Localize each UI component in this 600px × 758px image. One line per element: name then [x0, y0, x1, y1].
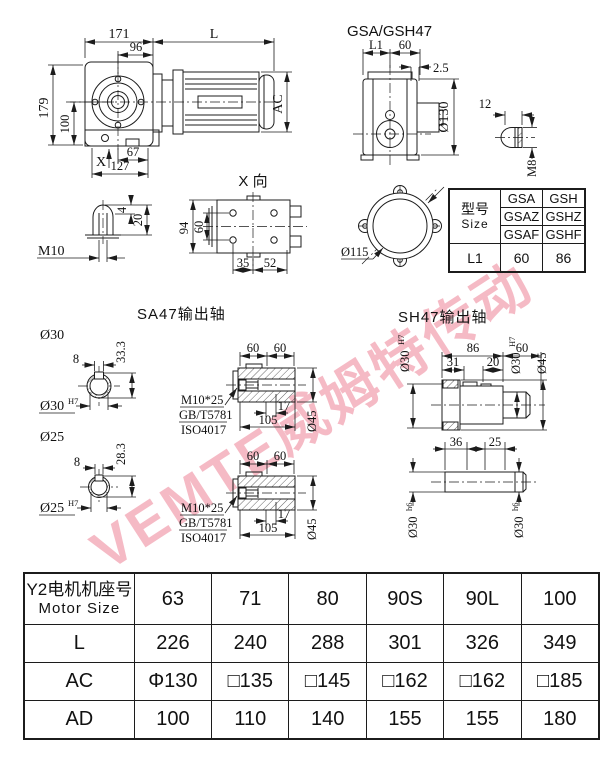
dim-label: 2.5 — [433, 61, 449, 75]
dim-label: 4 — [115, 206, 129, 213]
dim-label: Ø30 — [509, 352, 523, 374]
value-cell: 140 — [289, 701, 366, 740]
gsa-variant-cell: GSA — [501, 189, 543, 208]
value-cell: 110 — [212, 701, 289, 740]
value-cell: 155 — [366, 701, 443, 740]
dim-label: Ø130 — [437, 101, 452, 132]
gsh-variant-cell: GSHZ — [543, 208, 586, 226]
value-cell: 288 — [289, 625, 366, 663]
table-row: L1 60 86 — [449, 244, 585, 273]
value-cell: □135 — [212, 663, 289, 701]
dim-label: 127 — [111, 159, 130, 173]
motor-size-header-cell: Y2电机机座号 Motor Size — [24, 573, 134, 625]
drawing-page: VEMTE威姆特传动 /* color applied after load b… — [0, 0, 600, 758]
dim-label: 179 — [37, 98, 52, 119]
motor-size-header-cn: Y2电机机座号 — [25, 579, 134, 600]
dim-label: Ø45 — [305, 518, 319, 540]
value-cell: 100 — [134, 701, 211, 740]
x-direction-view-drawing: X 向 94 60 35 52 — [165, 170, 340, 292]
view-title: GSA/GSH47 — [347, 23, 432, 40]
row-label-AD: AD — [24, 701, 134, 740]
sa47-shaft-lower-drawing: 60 60 M10*25 GB/T5781 ISO4017 17 105 Ø45 — [178, 446, 328, 554]
bolt-spec-label: M10*25 — [181, 501, 223, 515]
dim-label: 17 — [278, 399, 291, 413]
dim-label: M8 — [525, 160, 539, 177]
dim-label: 60 — [192, 221, 206, 234]
bore-label: Ø30 — [40, 328, 64, 343]
sh47-section-title: SH47输出轴 — [398, 306, 488, 327]
dim-label: 52 — [264, 256, 277, 270]
sa47-bore25-section: Ø25 8 28.3 Ø25 H7 — [28, 424, 178, 528]
table-row: L 226 240 288 301 326 349 — [24, 625, 599, 663]
dim-label: 36 — [450, 435, 463, 449]
gsh-variant-cell: GSHF — [543, 226, 586, 244]
dim-label: 60 — [274, 341, 287, 355]
motor-size-cell: 90S — [366, 573, 443, 625]
dim-label: 105 — [259, 521, 278, 535]
model-header-cn: 型号 — [450, 202, 500, 217]
l1-gsa-cell: 60 — [501, 244, 543, 273]
dim-label: 60 — [399, 38, 412, 52]
standard-label: GB/T5781 — [179, 408, 232, 422]
motor-size-cell: 80 — [289, 573, 366, 625]
standard-label: GB/T5781 — [179, 516, 232, 530]
bolt-spec-label: M10*25 — [181, 393, 223, 407]
dim-label: 25 — [489, 435, 502, 449]
table-row: AC Φ130 □135 □145 □162 □162 □185 — [24, 663, 599, 701]
value-cell: □162 — [366, 663, 443, 701]
dim-label: 28.3 — [114, 443, 128, 465]
dim-tolerance: H7 — [507, 337, 517, 347]
dim-label: 17 — [278, 507, 291, 521]
sa47-shaft-upper-drawing: 60 60 M10*25 GB/T5781 ISO4017 17 105 Ø45 — [178, 338, 328, 446]
dim-label: 60 — [247, 449, 260, 463]
dim-label: 100 — [58, 115, 72, 134]
dim-label: M10 — [38, 244, 64, 259]
dim-label: AC — [271, 94, 286, 113]
table-row: 型号 Size GSA GSH — [449, 189, 585, 208]
dim-label: 8 — [74, 455, 80, 469]
value-cell: Φ130 — [134, 663, 211, 701]
dim-label: 105 — [259, 413, 278, 427]
dim-tolerance: h6 — [510, 503, 520, 512]
bore-label: Ø25 — [40, 430, 64, 445]
standard-label: ISO4017 — [181, 531, 226, 545]
dim-tolerance: h6 — [404, 503, 414, 512]
view-title: X 向 — [238, 173, 267, 190]
l1-gsh-cell: 86 — [543, 244, 586, 273]
dim-tolerance: H7 — [396, 335, 406, 345]
dim-label: Ø45 — [535, 352, 549, 374]
dim-label: 35 — [237, 256, 250, 270]
value-cell: 180 — [521, 701, 599, 740]
model-header-en: Size — [450, 218, 500, 231]
sa47-section-title: SA47输出轴 — [137, 303, 226, 324]
dim-label: 60 — [274, 449, 287, 463]
dim-label: Ø45 — [305, 410, 319, 432]
shaft-end-detail-drawing: M10 4 20 — [25, 192, 160, 292]
model-size-table: 型号 Size GSA GSH GSAZ GSHZ GSAF GSHF L1 6… — [448, 188, 586, 273]
dim-label: 33.3 — [114, 341, 128, 363]
motor-size-header-en: Motor Size — [25, 600, 134, 619]
dim-label: 67 — [127, 145, 140, 159]
dim-label: 94 — [177, 221, 191, 234]
dim-tolerance: H7 — [68, 498, 78, 508]
motor-size-cell: 90L — [444, 573, 521, 625]
sh47-shaft-lower-drawing: 36 25 Ø30 h6 Ø30 h6 — [393, 430, 600, 545]
flange-view-drawing: Ø115 — [340, 180, 460, 280]
dim-label: Ø115 — [341, 245, 368, 259]
dim-label: 20 — [487, 355, 500, 369]
sa47-bore30-section: Ø30 8 33.3 Ø30 H7 — [28, 322, 178, 426]
dim-label: X — [96, 155, 106, 170]
value-cell: 240 — [212, 625, 289, 663]
dim-label: L1 — [369, 38, 383, 52]
gsa-variant-cell: GSAF — [501, 226, 543, 244]
motor-size-cell: 71 — [212, 573, 289, 625]
side-view-drawing: GSA/GSH47 L1 60 2.5 Ø130 12 M8 — [335, 15, 600, 190]
value-cell: 301 — [366, 625, 443, 663]
value-cell: □145 — [289, 663, 366, 701]
motor-dimens-table: Y2电机机座号 Motor Size 63 71 80 90S 90L 100 … — [23, 572, 600, 740]
dim-label: Ø25 — [40, 501, 64, 516]
standard-label: ISO4017 — [181, 423, 226, 437]
dim-label: 171 — [109, 27, 130, 42]
dim-label: Ø30 — [398, 350, 412, 372]
row-label-L: L — [24, 625, 134, 663]
l1-label-cell: L1 — [449, 244, 501, 273]
sh47-shaft-upper-drawing: Ø30 H7 86 60 31 20 Ø30 H7 Ø45 — [393, 328, 600, 432]
motor-size-cell: 100 — [521, 573, 599, 625]
dim-label: 86 — [467, 341, 480, 355]
dim-label: Ø30 — [40, 399, 64, 414]
dim-label: Ø30 — [406, 516, 420, 538]
row-label-AC: AC — [24, 663, 134, 701]
gsa-variant-cell: GSAZ — [501, 208, 543, 226]
value-cell: 226 — [134, 625, 211, 663]
gsh-variant-cell: GSH — [543, 189, 586, 208]
dim-label: 96 — [130, 40, 143, 54]
dim-tolerance: H7 — [68, 396, 78, 406]
value-cell: 349 — [521, 625, 599, 663]
value-cell: □162 — [444, 663, 521, 701]
dim-label: Ø30 — [512, 516, 526, 538]
dim-label: L — [210, 27, 219, 42]
value-cell: □185 — [521, 663, 599, 701]
value-cell: 326 — [444, 625, 521, 663]
dim-label: 12 — [479, 97, 492, 111]
motor-size-cell: 63 — [134, 573, 211, 625]
dim-label: 31 — [447, 355, 460, 369]
model-header-cell: 型号 Size — [449, 189, 501, 244]
dim-label: 20 — [131, 214, 145, 227]
dim-label: 8 — [73, 352, 79, 366]
dim-label: 60 — [247, 341, 260, 355]
value-cell: 155 — [444, 701, 521, 740]
table-row: AD 100 110 140 155 155 180 — [24, 701, 599, 740]
table-row: Y2电机机座号 Motor Size 63 71 80 90S 90L 100 — [24, 573, 599, 625]
